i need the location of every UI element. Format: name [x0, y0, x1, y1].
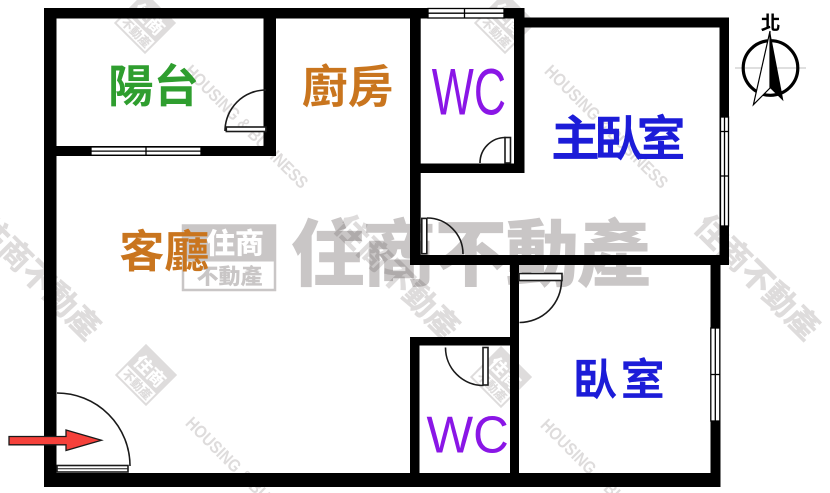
svg-text:WC: WC	[432, 55, 506, 129]
svg-text:WC: WC	[427, 405, 509, 463]
